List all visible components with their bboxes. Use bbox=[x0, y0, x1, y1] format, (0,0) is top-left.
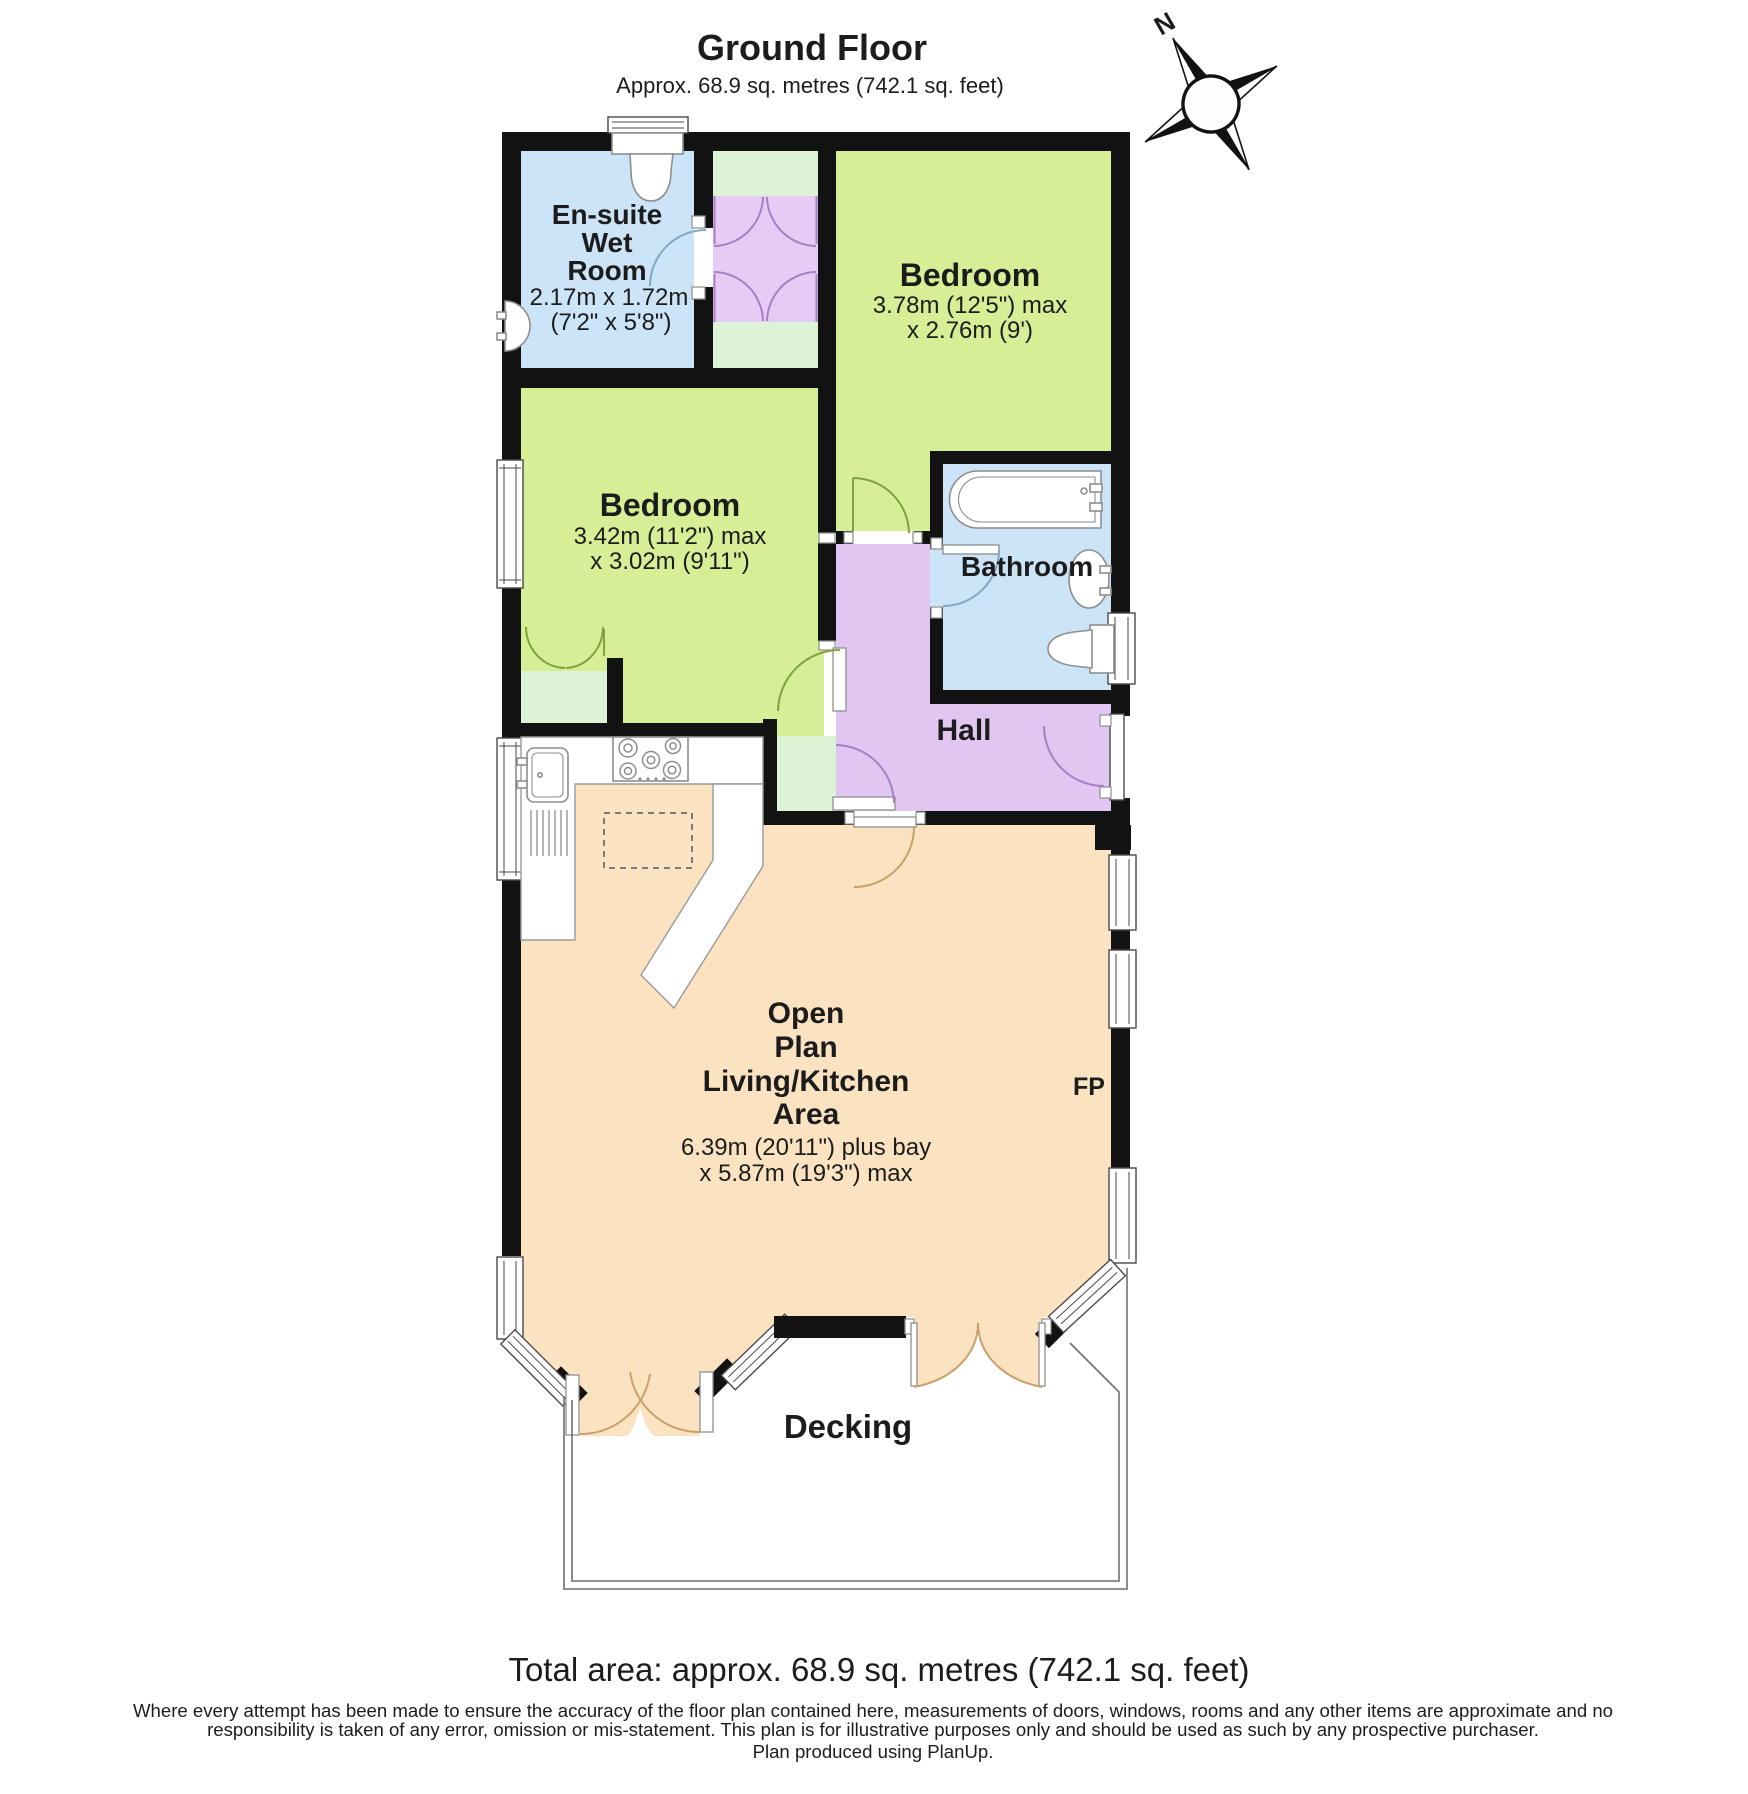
svg-text:Approx. 68.9 sq. metres (742.1: Approx. 68.9 sq. metres (742.1 sq. feet) bbox=[616, 73, 1004, 98]
svg-text:Where every attempt has been m: Where every attempt has been made to ens… bbox=[133, 1700, 1613, 1721]
svg-text:x 2.76m (9'): x 2.76m (9') bbox=[907, 317, 1033, 344]
svg-text:Open: Open bbox=[768, 997, 845, 1030]
svg-text:Room: Room bbox=[567, 255, 646, 286]
svg-text:Bathroom: Bathroom bbox=[961, 551, 1093, 582]
svg-text:x 3.02m (9'11"): x 3.02m (9'11") bbox=[590, 548, 749, 575]
svg-text:Bedroom: Bedroom bbox=[900, 257, 1040, 293]
svg-text:3.78m (12'5") max: 3.78m (12'5") max bbox=[873, 292, 1068, 319]
svg-text:En-suite: En-suite bbox=[552, 199, 662, 230]
svg-text:Total area: approx. 68.9 sq. m: Total area: approx. 68.9 sq. metres (742… bbox=[508, 1651, 1249, 1688]
svg-text:Plan produced using PlanUp.: Plan produced using PlanUp. bbox=[753, 1741, 994, 1762]
svg-text:6.39m (20'11") plus bay: 6.39m (20'11") plus bay bbox=[681, 1134, 931, 1161]
svg-text:Decking: Decking bbox=[784, 1408, 912, 1445]
svg-text:(7'2" x 5'8"): (7'2" x 5'8") bbox=[551, 309, 672, 336]
svg-text:x 5.87m (19'3") max: x 5.87m (19'3") max bbox=[699, 1160, 912, 1187]
svg-text:Area: Area bbox=[773, 1098, 840, 1131]
svg-text:Plan: Plan bbox=[774, 1031, 837, 1064]
svg-text:FP: FP bbox=[1073, 1073, 1105, 1101]
svg-text:Bedroom: Bedroom bbox=[600, 487, 740, 523]
svg-text:2.17m x 1.72m: 2.17m x 1.72m bbox=[530, 284, 689, 311]
svg-text:responsibility is taken of any: responsibility is taken of any error, om… bbox=[207, 1719, 1539, 1740]
svg-text:Wet: Wet bbox=[582, 227, 633, 258]
svg-text:3.42m (11'2") max: 3.42m (11'2") max bbox=[574, 523, 767, 550]
svg-text:Hall: Hall bbox=[936, 714, 991, 747]
svg-text:Ground Floor: Ground Floor bbox=[697, 27, 927, 68]
svg-text:Living/Kitchen: Living/Kitchen bbox=[703, 1065, 910, 1098]
